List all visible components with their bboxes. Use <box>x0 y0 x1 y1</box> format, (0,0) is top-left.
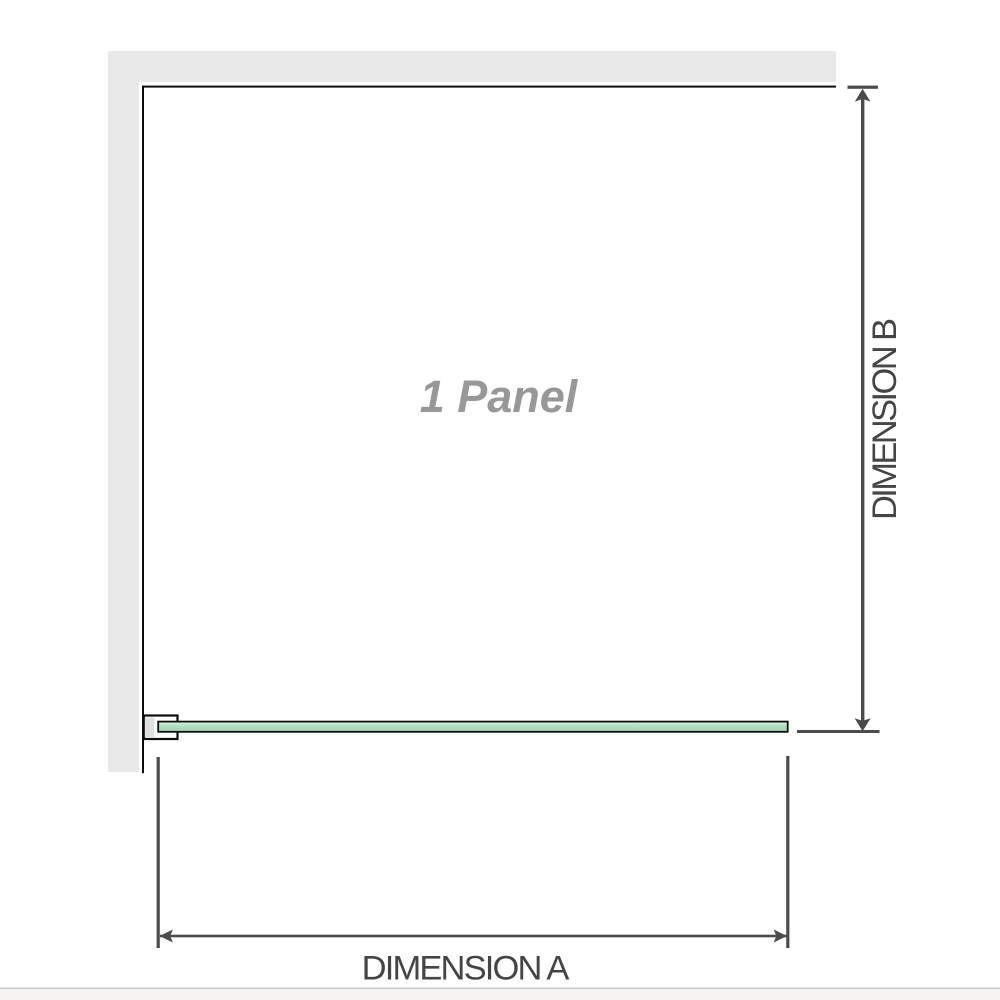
svg-text:1 Panel: 1 Panel <box>420 371 579 422</box>
svg-text:DIMENSION A: DIMENSION A <box>362 949 570 987</box>
svg-text:DIMENSION B: DIMENSION B <box>866 319 904 520</box>
